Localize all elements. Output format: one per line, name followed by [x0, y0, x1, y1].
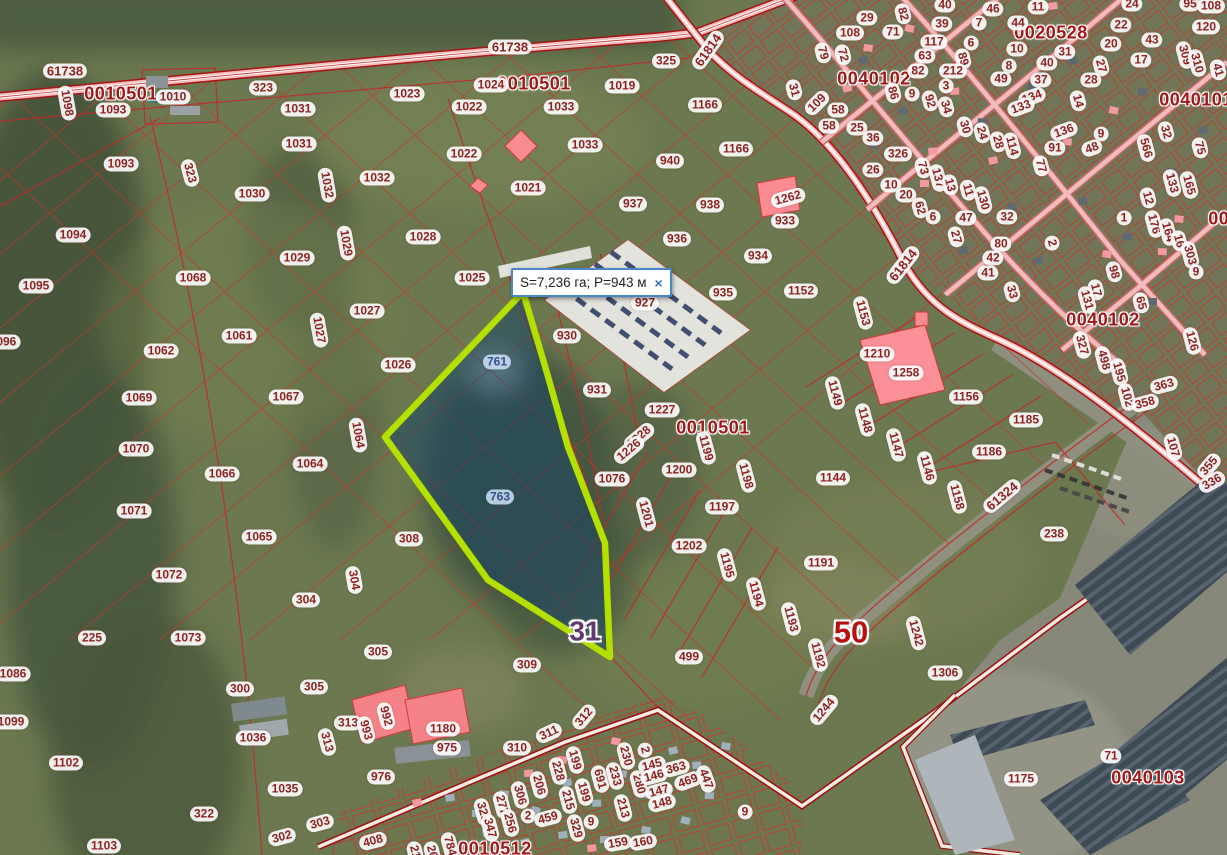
parcel-number-label: 1031 [282, 137, 317, 152]
parcel-number-label: 1073 [171, 631, 206, 646]
zone-number-label: 31 [569, 624, 600, 639]
parcel-number-label: 976 [367, 770, 395, 785]
parcel-number-label: 927 [631, 296, 659, 311]
zone-number-label: 50 [834, 625, 868, 640]
parcel-number-label: 1306 [928, 666, 963, 681]
parcel-number-label: 10 [1006, 42, 1027, 57]
parcel-number-label: 43 [1141, 33, 1162, 48]
parcel-number-label: 934 [744, 249, 772, 264]
parcel-number-label: 1093 [96, 103, 131, 118]
parcel-number-label: 32 [1156, 120, 1176, 145]
parcel-number-label: 1200 [662, 463, 697, 478]
parcel-number-label: 17 [1130, 53, 1151, 68]
parcel-number-label: 1242 [904, 614, 927, 651]
parcel-number-label: 9 [905, 87, 920, 102]
parcel-number-label: 32 [996, 210, 1017, 225]
parcel-number-label: 309 [513, 658, 541, 673]
parcel-number-label: 80 [990, 237, 1011, 252]
parcel-number-label: 1066 [205, 467, 240, 482]
parcel-number-label: 77 [1031, 154, 1051, 179]
road-number-label: 61324 [980, 476, 1023, 516]
parcel-number-label: 40 [934, 0, 955, 13]
parcel-number-label: 1193 [779, 601, 802, 638]
parcel-number-label: 499 [675, 650, 703, 665]
parcel-number-label: 1026 [381, 358, 416, 373]
parcel-number-label: 1153 [851, 295, 874, 332]
parcel-number-label: 49 [990, 72, 1011, 87]
parcel-number-label: 29 [856, 11, 877, 26]
parcel-number-label: 1027 [309, 312, 330, 349]
parcel-number-label: 1070 [119, 442, 154, 457]
parcel-number-label: 1192 [806, 637, 829, 674]
parcel-number-label: 1258 [889, 366, 924, 381]
quarter-code-label: 0040102 [1066, 313, 1140, 328]
parcel-number-label: 41 [977, 266, 998, 281]
parcel-number-label: 1147 [884, 427, 907, 464]
parcel-number-label: 75 [1190, 136, 1210, 161]
parcel-number-label: 935 [709, 286, 737, 301]
parcel-number-label: 1021 [511, 181, 546, 196]
parcel-number-label: 313 [316, 727, 338, 758]
quarter-code-label: 0040102 [837, 72, 911, 87]
parcel-number-label: 24 [1121, 0, 1142, 12]
parcel-number-label: 302 [267, 826, 298, 848]
cadastral-map-viewport[interactable]: 6173861738618146181461324001050100105010… [0, 0, 1227, 855]
parcel-number-label: 108 [1197, 0, 1225, 14]
parcel-number-label: 1064 [293, 457, 328, 472]
parcel-number-label: 6 [926, 210, 941, 225]
parcel-number-label: 936 [663, 232, 691, 247]
parcel-number-label: 136 [1048, 119, 1079, 143]
road-number-label: 61738 [43, 64, 87, 79]
parcel-number-label: 1146 [915, 450, 938, 487]
parcel-number-label: 1028 [406, 230, 441, 245]
parcel-number-label: 107 [1162, 432, 1184, 463]
parcel-number-label: 310 [503, 741, 531, 756]
parcel-number-label: 126 [1181, 326, 1203, 357]
quarter-code-label: 0010512 [458, 842, 532, 855]
parcel-number-label: 39 [931, 17, 952, 32]
parcel-number-label: 28 [1080, 73, 1101, 88]
parcel-number-label: 1032 [317, 167, 338, 204]
parcel-number-label: 34 [936, 95, 956, 120]
parcel-number-label: 1076 [595, 472, 630, 487]
parcel-number-label: 2 [1043, 234, 1061, 252]
parcel-number-label: 46 [982, 2, 1003, 17]
parcel-number-label: 1144 [816, 471, 850, 486]
parcel-number-label: 1069 [122, 391, 157, 406]
parcel-number-label: 1201 [634, 495, 657, 532]
parcel-number-label: 225 [78, 631, 106, 646]
parcel-number-label: 2 [521, 809, 536, 824]
parcel-number-label: 13 [940, 173, 960, 198]
parcel-number-label: 1072 [152, 568, 187, 583]
parcel-number-label: 304 [344, 565, 364, 595]
quarter-code-label: 0040101 [1159, 93, 1227, 108]
parcel-number-label: 310 [1186, 48, 1208, 79]
parcel-number-label: 327 [1071, 330, 1093, 361]
parcel-number-label: 311 [533, 720, 564, 745]
parcel-number-label: 1027 [350, 304, 385, 319]
parcel-number-label: 1064 [348, 417, 369, 454]
parcel-number-label: 1025 [455, 271, 490, 286]
parcel-number-label: 114 [1001, 131, 1023, 161]
parcel-number-label: 256 [499, 808, 521, 839]
parcel-number-label: 300 [226, 682, 254, 697]
parcel-number-label: 1033 [568, 138, 603, 153]
parcel-number-label: 304 [292, 593, 320, 608]
parcel-number-label: 305 [300, 680, 328, 695]
parcel-number-label: 1227 [645, 403, 680, 418]
parcel-number-label: 31 [1054, 45, 1075, 60]
parcel-number-label: 1102 [49, 756, 83, 771]
parcel-number-label: 931 [583, 383, 611, 398]
parcel-number-label: 1096 [0, 335, 20, 350]
parcel-number-label: 199 [564, 745, 586, 776]
parcel-number-label: 1086 [0, 667, 30, 682]
parcel-number-label: 213 [612, 793, 634, 824]
quarter-code-label: 0010501 [84, 87, 158, 102]
parcel-number-label: 36 [862, 131, 883, 146]
parcel-number-label: 133 [1161, 168, 1183, 199]
parcel-number-label: 30 [955, 115, 975, 140]
parcel-number-label: 1022 [452, 100, 487, 115]
parcel-number-label: 40 [1036, 56, 1057, 71]
parcel-number-label: 993 [355, 715, 377, 746]
tooltip-close-button[interactable]: × [655, 275, 663, 291]
parcel-number-label: 1023 [390, 87, 425, 102]
parcel-number-label: 1068 [176, 271, 211, 286]
parcel-number-label: 975 [433, 741, 461, 756]
parcel-number-label: 326 [884, 147, 912, 162]
parcel-number-label: 1166 [719, 142, 753, 157]
parcel-number-label: 305 [364, 645, 392, 660]
parcel-info-tooltip: S=7,236 га; P=943 м × [511, 268, 672, 297]
parcel-number-label: 37 [1030, 73, 1051, 88]
parcel-number-label: 1156 [949, 390, 983, 405]
parcel-number-label: 329 [565, 813, 587, 844]
parcel-number-label: 408 [358, 830, 389, 852]
parcel-number-label: 1095 [19, 279, 54, 294]
parcel-number-label: 1198 [734, 458, 757, 495]
parcel-labels-layer: 6173861738618146181461324001050100105010… [0, 0, 1227, 855]
parcel-number-label: 938 [696, 198, 724, 213]
parcel-number-label: 1094 [56, 228, 91, 243]
parcel-number-label: 71 [1100, 749, 1121, 764]
parcel-number-label: 308 [395, 532, 423, 547]
parcel-number-label: 47 [955, 211, 976, 226]
parcel-number-label: 71 [882, 25, 903, 40]
parcel-number-label: 91 [1044, 141, 1065, 156]
parcel-number-label: 72 [833, 43, 853, 68]
parcel-number-label: 1010 [156, 90, 191, 105]
tooltip-measurements: S=7,236 га; P=943 м [520, 275, 647, 290]
parcel-number-label: 1185 [1009, 413, 1043, 428]
parcel-number-label: 20 [1100, 37, 1121, 52]
parcel-number-label: 21 [405, 840, 425, 855]
parcel-number-label: 3 [939, 79, 954, 94]
parcel-number-label: 11 [1028, 0, 1049, 15]
parcel-number-label: 117 [920, 35, 947, 50]
parcel-number-label: 1194 [744, 576, 767, 613]
parcel-number-label: 212 [939, 64, 967, 79]
parcel-number-label: 1030 [235, 187, 270, 202]
parcel-number-label: 26 [862, 163, 883, 178]
parcel-number-label: 120 [1192, 20, 1220, 35]
parcel-number-label: 325 [652, 54, 680, 69]
parcel-number-label: 1244 [807, 692, 841, 728]
road-number-label: 61738 [488, 40, 532, 55]
parcel-number-label: 108 [836, 26, 864, 41]
parcel-number-label: 1061 [222, 329, 257, 344]
parcel-number-label: 1035 [268, 782, 303, 797]
road-number-label: 61814 [883, 243, 922, 287]
parcel-number-label: 1067 [269, 390, 304, 405]
parcel-number-label: 98 [1104, 260, 1124, 285]
parcel-number-label: 206 [528, 770, 550, 801]
quarter-code-label: 0040102 [1208, 212, 1227, 227]
parcel-number-label: 323 [249, 81, 277, 96]
quarter-code-label: 0040103 [1111, 771, 1185, 786]
parcel-number-label: 7 [972, 16, 987, 31]
parcel-number-label: 26 [422, 840, 442, 855]
parcel-number-label: 133 [1005, 95, 1036, 119]
parcel-number-label: 937 [619, 197, 647, 212]
parcel-number-label: 940 [656, 154, 684, 169]
parcel-number-label: 1103 [87, 839, 121, 854]
parcel-number-label: 165 [1178, 170, 1200, 201]
parcel-number-label: 322 [190, 807, 218, 822]
parcel-number-label: 1029 [336, 225, 357, 262]
parcel-number-label: 1071 [117, 504, 152, 519]
parcel-number-label: 1175 [1004, 772, 1038, 787]
parcel-number-label: 9 [738, 805, 753, 820]
parcel-number-label: 82 [907, 64, 928, 79]
parcel-number-label: 160 [628, 832, 658, 852]
parcel-number-label: 1148 [853, 402, 876, 439]
road-number-label: 61814 [689, 28, 727, 73]
parcel-number-label: 459 [533, 807, 564, 829]
parcel-number-label: 9 [1189, 265, 1204, 280]
parcel-number-label: 1186 [972, 445, 1006, 460]
parcel-number-label: 9 [584, 815, 599, 830]
parcel-number-label: 1093 [104, 157, 139, 172]
parcel-number-label: 933 [771, 214, 799, 229]
parcel-number-label: 1098 [57, 85, 78, 122]
parcel-number-label: 12 [1138, 186, 1158, 211]
parcel-number-label: 1031 [281, 102, 316, 117]
parcel-number-label: 82 [893, 2, 913, 27]
parcel-number-label: 1166 [688, 98, 722, 113]
parcel-number-label: 1152 [784, 284, 818, 299]
parcel-number-label: 1032 [360, 171, 395, 186]
parcel-number-label: 1149 [823, 375, 846, 412]
parcel-number-label: 1022 [447, 147, 482, 162]
parcel-number-label: 228 [547, 756, 569, 787]
parcel-number-label: 1029 [280, 251, 315, 266]
parcel-number-label: 312 [569, 701, 599, 732]
parcel-number-label: 130 [972, 185, 994, 216]
parcel-number-label: 1099 [0, 715, 28, 730]
parcel-number-label: 41 [1208, 58, 1227, 83]
parcel-number-label: 1195 [715, 547, 738, 584]
parcel-number-label: 566 [1135, 133, 1157, 164]
parcel-number-label: 1210 [860, 347, 895, 362]
parcel-number-label: 1 [1117, 211, 1132, 226]
parcel-number-label: 1065 [242, 530, 277, 545]
parcel-number-label: 306 [509, 780, 531, 811]
parcel-number-label: 1158 [945, 479, 968, 516]
parcel-number-label: 303 [305, 812, 336, 834]
parcel-number-label: 992 [375, 701, 397, 732]
parcel-number-label: 363 [1149, 374, 1180, 396]
parcel-number-label: 447 [694, 763, 718, 794]
parcel-number-label: 1036 [236, 731, 271, 746]
parcel-number-label: 14 [1068, 89, 1088, 114]
parcel-number-label: 24 [972, 121, 992, 146]
parcel-number-label: 1024 [474, 78, 509, 93]
selected-parcel-number-label: 761 [483, 355, 511, 370]
quarter-code-label: 0010501 [676, 421, 750, 436]
parcel-number-label: 31 [784, 78, 804, 103]
parcel-number-label: 1191 [804, 556, 838, 571]
parcel-number-label: 63 [914, 49, 935, 64]
parcel-number-label: 27 [946, 225, 966, 250]
parcel-number-label: 1262 [769, 186, 806, 209]
parcel-number-label: 238 [1040, 527, 1068, 542]
parcel-number-label: 1033 [544, 100, 579, 115]
parcel-number-label: 58 [818, 119, 839, 134]
parcel-number-label: 323 [179, 158, 201, 189]
parcel-number-label: 1197 [705, 500, 739, 515]
parcel-number-label: 930 [553, 329, 581, 344]
selected-parcel-number-label: 763 [486, 490, 514, 505]
parcel-number-label: 33 [1002, 280, 1022, 305]
parcel-number-label: 1180 [426, 722, 460, 737]
parcel-number-label: 1062 [144, 344, 179, 359]
parcel-number-label: 44 [1007, 16, 1028, 31]
parcel-number-label: 79 [813, 41, 833, 66]
parcel-number-label: 42 [982, 251, 1003, 266]
parcel-number-label: 58 [827, 103, 848, 118]
parcel-number-label: 22 [1110, 18, 1131, 33]
parcel-number-label: 1019 [605, 79, 640, 94]
parcel-number-label: 1202 [672, 539, 707, 554]
